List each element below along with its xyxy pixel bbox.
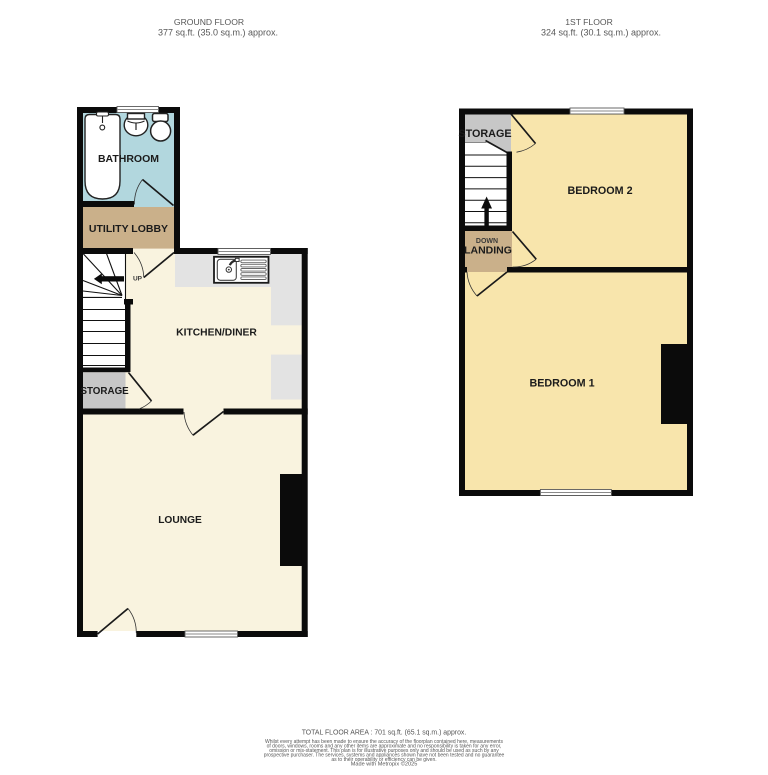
svg-text:UTILITY LOBBY: UTILITY LOBBY bbox=[89, 223, 168, 235]
svg-text:LANDING: LANDING bbox=[464, 245, 512, 257]
svg-text:Made with Metropix ©2025: Made with Metropix ©2025 bbox=[351, 760, 418, 767]
svg-text:BATHROOM: BATHROOM bbox=[98, 153, 159, 165]
svg-text:377 sq.ft. (35.0 sq.m.) approx: 377 sq.ft. (35.0 sq.m.) approx. bbox=[158, 27, 278, 37]
svg-text:GROUND FLOOR: GROUND FLOOR bbox=[174, 17, 244, 27]
svg-text:STORAGE: STORAGE bbox=[80, 386, 129, 397]
svg-text:324 sq.ft. (30.1 sq.m.) approx: 324 sq.ft. (30.1 sq.m.) approx. bbox=[541, 27, 661, 37]
svg-text:KITCHEN/DINER: KITCHEN/DINER bbox=[176, 327, 257, 338]
svg-text:STORAGE: STORAGE bbox=[458, 128, 511, 140]
svg-text:BEDROOM 2: BEDROOM 2 bbox=[567, 185, 632, 197]
svg-text:1ST FLOOR: 1ST FLOOR bbox=[565, 17, 613, 27]
svg-text:LOUNGE: LOUNGE bbox=[158, 515, 202, 526]
svg-text:TOTAL FLOOR AREA : 701 sq.ft.: TOTAL FLOOR AREA : 701 sq.ft. (65.1 sq.m… bbox=[302, 729, 467, 736]
svg-text:BEDROOM 1: BEDROOM 1 bbox=[529, 378, 594, 390]
svg-text:UP: UP bbox=[133, 276, 143, 283]
